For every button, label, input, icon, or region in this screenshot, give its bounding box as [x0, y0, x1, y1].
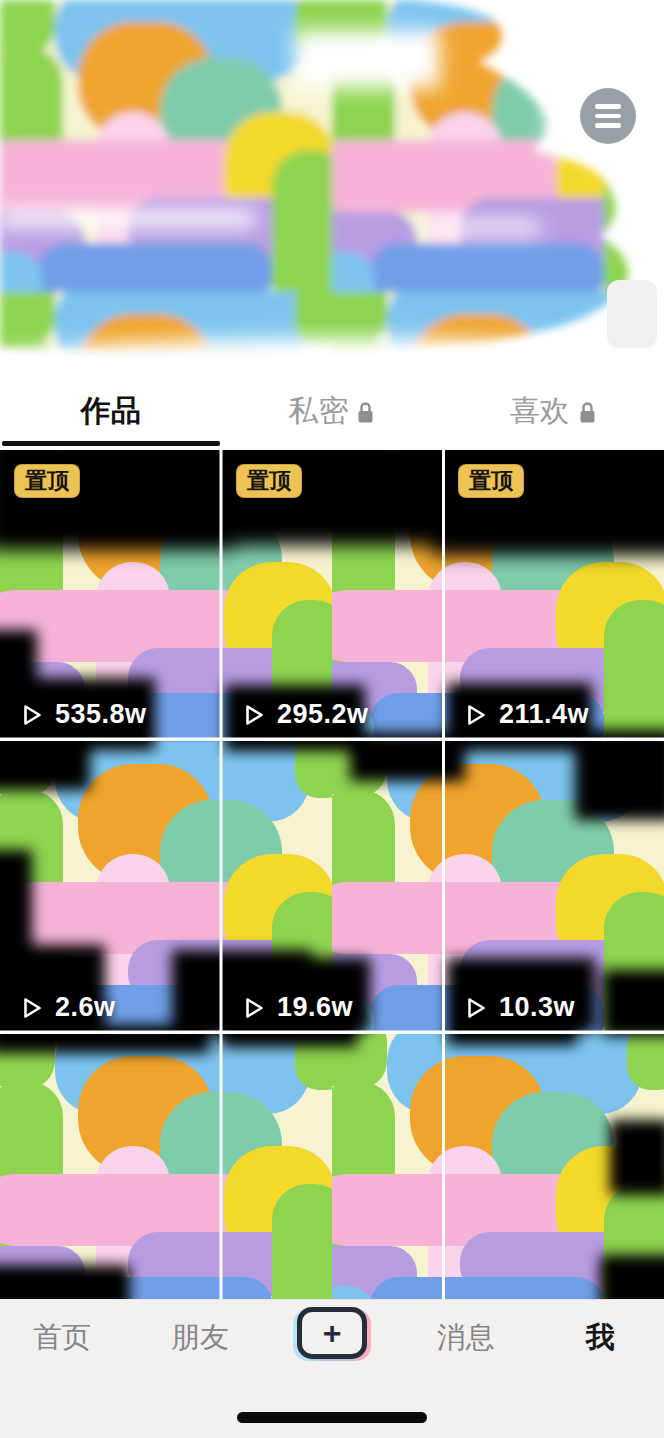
view-count-value: 295.2w	[277, 699, 369, 730]
play-icon	[18, 702, 44, 728]
view-count: 211.4w	[462, 699, 589, 730]
video-cell[interactable]: 置顶 211.4w	[444, 450, 664, 738]
play-icon	[18, 995, 44, 1021]
profile-tabs: 作品 私密 喜欢	[0, 372, 664, 450]
view-count: 2.6w	[18, 992, 116, 1023]
profile-action-card	[607, 280, 657, 348]
view-count-value: 2.6w	[55, 992, 116, 1023]
video-cell[interactable]	[222, 1034, 441, 1299]
create-button[interactable]: +	[297, 1307, 367, 1359]
pinned-badge: 置顶	[458, 464, 524, 498]
censored-profile-paint	[0, 0, 664, 380]
tab-private-label: 私密	[288, 391, 348, 432]
view-count: 10.3w	[462, 992, 575, 1023]
nav-item-home[interactable]: 首页	[2, 1318, 122, 1358]
video-cell[interactable]: 置顶 535.8w	[0, 450, 219, 738]
active-tab-indicator	[2, 441, 220, 446]
tab-private[interactable]: 私密	[221, 372, 442, 450]
tab-works[interactable]: 作品	[0, 372, 221, 450]
profile-header	[0, 0, 664, 380]
plus-icon: +	[323, 1317, 342, 1349]
pinned-badge: 置顶	[236, 464, 302, 498]
hamburger-icon	[595, 104, 621, 109]
view-count: 535.8w	[18, 699, 147, 730]
play-icon	[240, 702, 266, 728]
bottom-nav: 首页 朋友 + 消息 我	[0, 1299, 664, 1438]
video-cell[interactable]: 10.3w	[444, 741, 664, 1031]
nav-item-friends[interactable]: 朋友	[140, 1318, 260, 1358]
video-cell[interactable]: 19.6w	[222, 741, 441, 1031]
hamburger-icon	[595, 123, 621, 128]
view-count: 295.2w	[240, 699, 369, 730]
view-count-value: 535.8w	[55, 699, 147, 730]
tab-likes[interactable]: 喜欢	[443, 372, 664, 450]
video-cell[interactable]	[444, 1034, 664, 1299]
play-icon	[462, 995, 488, 1021]
view-count: 19.6w	[240, 992, 353, 1023]
home-indicator[interactable]	[237, 1412, 427, 1423]
tab-likes-label: 喜欢	[510, 391, 570, 432]
view-count-value: 10.3w	[499, 992, 575, 1023]
video-cell[interactable]: 置顶 295.2w	[222, 450, 441, 738]
lock-icon	[578, 401, 597, 424]
menu-button[interactable]	[580, 88, 636, 144]
pinned-badge: 置顶	[14, 464, 80, 498]
video-cell[interactable]: 2.6w	[0, 741, 219, 1031]
video-cell[interactable]	[0, 1034, 219, 1299]
nav-item-messages[interactable]: 消息	[406, 1318, 526, 1358]
lock-icon	[356, 401, 375, 424]
video-grid: 置顶 535.8w 置顶 295.2w 置顶	[0, 450, 664, 1299]
hamburger-icon	[595, 114, 621, 119]
view-count-value: 211.4w	[499, 699, 589, 730]
play-icon	[462, 702, 488, 728]
douyin-profile-screen: 作品 私密 喜欢	[0, 0, 664, 1438]
play-icon	[240, 995, 266, 1021]
tab-works-label: 作品	[81, 391, 141, 432]
view-count-value: 19.6w	[277, 992, 353, 1023]
nav-item-me[interactable]: 我	[540, 1318, 660, 1358]
